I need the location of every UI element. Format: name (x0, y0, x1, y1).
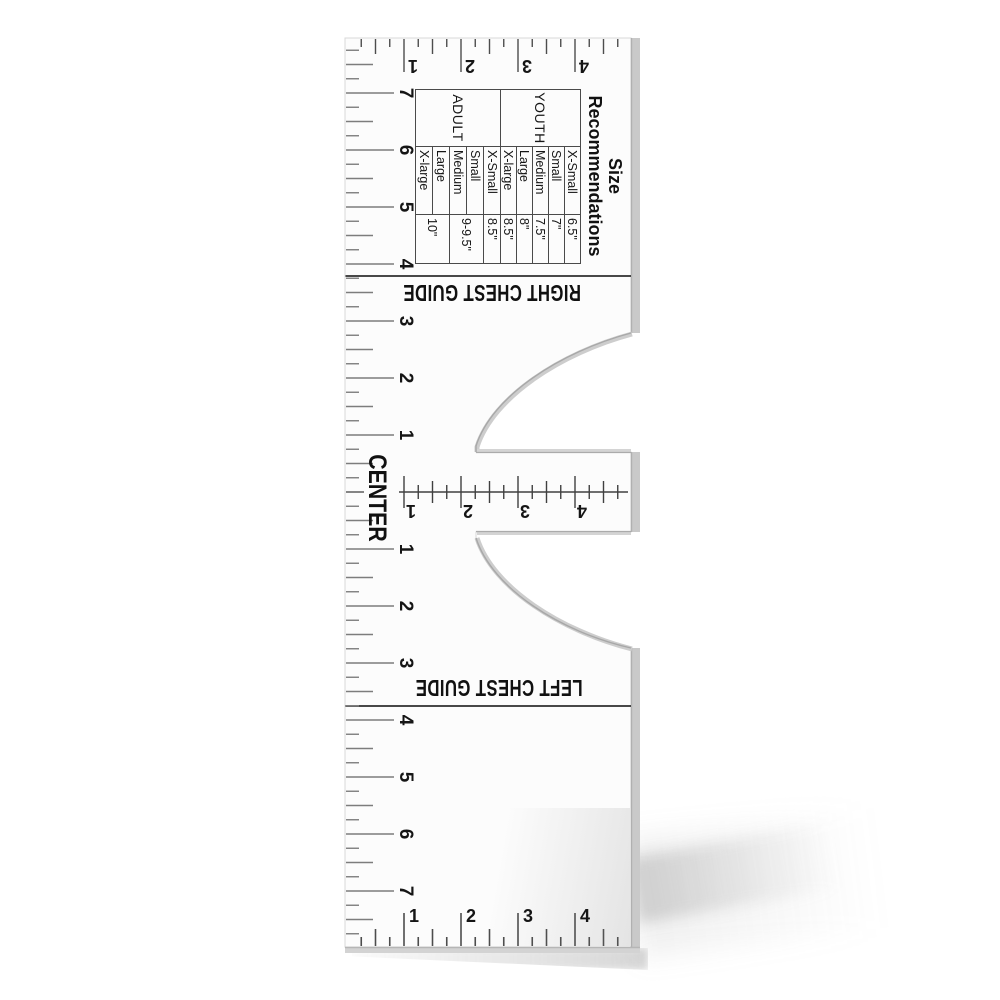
left-scale-upper-number: 6 (395, 137, 415, 163)
group-name-youth: YOUTH (501, 90, 581, 147)
size-table: Size Recommendations YOUTH X-Small 6.5" … (415, 89, 625, 263)
size-cell: Small (467, 147, 484, 215)
left-scale-lower-number: 2 (395, 593, 415, 619)
top-scale-number: 4 (571, 56, 597, 76)
left-scale-lower-number: 3 (395, 650, 415, 676)
value-cell: 8.5" (501, 215, 517, 264)
size-cell: Medium (533, 147, 549, 215)
left-scale-lower-number: 1 (395, 536, 415, 562)
size-cell: X-large (416, 147, 433, 215)
group-name-adult: ADULT (416, 90, 501, 147)
left-scale-upper-number: 7 (395, 80, 415, 106)
left-scale-upper-number: 4 (395, 251, 415, 277)
size-cell: Small (549, 147, 565, 215)
left-scale-lower-number: 5 (395, 764, 415, 790)
size-table-grid: YOUTH X-Small 6.5" Small 7" Medium 7.5" … (415, 89, 581, 264)
left-scale-upper-number: 2 (395, 365, 415, 391)
bottom-scale-number: 3 (515, 906, 541, 926)
center-bar-scale-number: 2 (455, 501, 481, 521)
left-scale-upper-number: 5 (395, 194, 415, 220)
center-bar-scale-number: 4 (569, 501, 595, 521)
value-cell: 8" (517, 215, 533, 264)
top-scale-number: 2 (457, 56, 483, 76)
bottom-scale-number: 4 (572, 906, 598, 926)
size-table-title-line2: Recommendations (585, 89, 605, 263)
value-cell: 7" (549, 215, 565, 264)
left-scale-lower-number: 6 (395, 821, 415, 847)
value-cell: 6.5" (565, 215, 581, 264)
right-chest-guide-label: RIGHT CHEST GUIDE (413, 281, 581, 305)
ruler-markings: RIGHT CHEST GUIDE CENTER LEFT CHEST GUID… (0, 0, 1000, 1000)
left-scale-lower-number: 7 (395, 878, 415, 904)
product-photo: RIGHT CHEST GUIDE CENTER LEFT CHEST GUID… (0, 0, 1000, 1000)
size-cell: Large (517, 147, 533, 215)
left-scale-upper-number: 1 (395, 422, 415, 448)
center-bar-scale-number: 3 (512, 501, 538, 521)
center-bar-scale-number: 1 (398, 501, 424, 521)
value-cell: 10" (416, 215, 450, 264)
value-cell: 8.5" (484, 215, 501, 264)
left-scale-upper-number: 3 (395, 308, 415, 334)
bottom-scale-number: 1 (401, 906, 427, 926)
size-cell: Medium (450, 147, 467, 215)
size-cell: X-large (501, 147, 517, 215)
value-cell: 9-9.5" (450, 215, 484, 264)
top-scale-number: 1 (400, 56, 426, 76)
left-scale-lower-number: 4 (395, 707, 415, 733)
left-chest-guide-label: LEFT CHEST GUIDE (415, 676, 583, 700)
size-table-title: Size Recommendations (581, 89, 625, 263)
bottom-scale-number: 2 (458, 906, 484, 926)
size-cell: Large (433, 147, 450, 215)
size-cell: X-Small (484, 147, 501, 215)
size-table-title-line1: Size (605, 89, 625, 263)
value-cell: 7.5" (533, 215, 549, 264)
top-scale-number: 3 (514, 56, 540, 76)
size-cell: X-Small (565, 147, 581, 215)
center-label: CENTER (364, 417, 390, 579)
